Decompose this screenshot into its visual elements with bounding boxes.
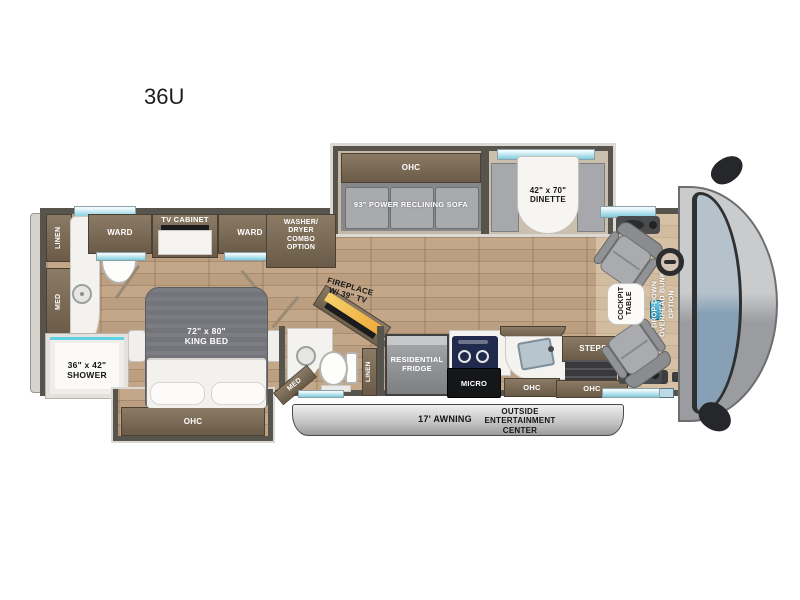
dinette-label: 42" x 70" DINETTE <box>517 186 579 205</box>
tv-cabinet-counter <box>158 230 212 255</box>
ward-left-label: WARD <box>88 228 152 237</box>
outside-entertainment-label: OUTSIDE ENTERTAINMENT CENTER <box>450 407 590 435</box>
bed-pillow-left <box>150 382 205 405</box>
nightstand-left <box>128 330 146 362</box>
mid-linen-label: LINEN <box>365 352 373 392</box>
mid-bath-wall-right <box>377 326 384 396</box>
burner <box>458 350 471 363</box>
cooktop <box>452 336 498 370</box>
cooktop-controls <box>458 340 488 344</box>
rear-linen-label: LINEN <box>55 218 63 258</box>
sofa-ohc-label: OHC <box>341 163 481 172</box>
kitchen-sink <box>517 337 555 370</box>
fridge-label: RESIDENTIAL FRIDGE <box>385 356 449 374</box>
sofa-dinette-divider-wall <box>481 150 489 234</box>
dinette-bench-right <box>577 163 605 232</box>
bedroom-window-left <box>96 252 146 261</box>
shower-accent <box>50 337 124 340</box>
mid-toilet-bowl <box>319 351 348 386</box>
mid-bath-window <box>298 390 344 398</box>
washer-dryer-label: WASHER/ DRYER COMBO OPTION <box>266 219 336 252</box>
fridge-top-band <box>387 336 447 345</box>
kitchen-faucet <box>548 346 554 352</box>
floorplan-canvas: 36U OHC 93" POWER RECLINING SOFA 42" x 7… <box>0 0 800 600</box>
shower-label: 36" x 42" SHOWER <box>48 360 126 380</box>
sofa-label: 93" POWER RECLINING SOFA <box>339 201 483 210</box>
microwave-label: MICRO <box>447 380 501 389</box>
rear-bath-sink-drain <box>80 292 84 296</box>
knob <box>649 221 657 229</box>
side-mirror-top <box>706 150 748 190</box>
rear-med-label: MED <box>55 284 63 320</box>
bed-ohc-label: OHC <box>121 417 265 426</box>
cockpit-table-label: COCKPIT TABLE <box>618 282 635 324</box>
floorplan-title: 36U <box>144 84 184 110</box>
burner <box>476 350 489 363</box>
tv-cabinet-label: TV CABINET <box>152 216 218 225</box>
steering-wheel-icon <box>656 248 684 276</box>
sink-ohc-label: OHC <box>504 384 560 393</box>
dinette-bench-left <box>491 163 519 232</box>
mid-bath-sink <box>296 346 316 366</box>
king-bed-label: 72" x 80" KING BED <box>145 326 268 346</box>
bed-pillow-right <box>211 382 266 405</box>
steering-hub <box>664 260 676 264</box>
